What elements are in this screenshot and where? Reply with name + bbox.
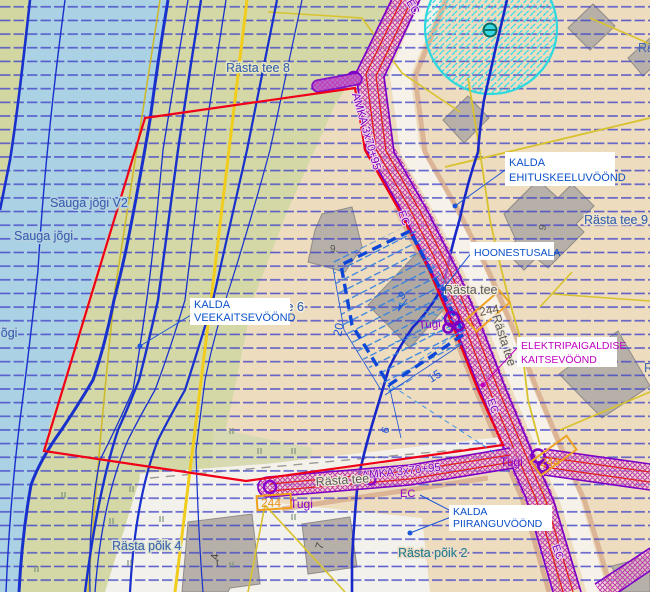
svg-text:Sauga jõgi V2: Sauga jõgi V2 <box>50 196 128 210</box>
svg-text:EHITUSKEELUVÖÖND: EHITUSKEELUVÖÖND <box>509 172 626 184</box>
svg-text:KALDA: KALDA <box>194 299 231 311</box>
svg-text:Rästa tee: Rästa tee <box>444 283 498 297</box>
svg-text:EC: EC <box>400 488 415 500</box>
svg-text:ELEKTRIPAIGALDISE: ELEKTRIPAIGALDISE <box>521 340 626 352</box>
svg-text:t: t <box>216 558 219 569</box>
svg-text:Rästa põik 4: Rästa põik 4 <box>112 539 182 553</box>
svg-text:Rästa tee 9: Rästa tee 9 <box>584 213 648 227</box>
svg-text:Rä: Rä <box>644 361 650 375</box>
svg-text:Sauga jõgi: Sauga jõgi <box>14 229 73 243</box>
svg-text:244: 244 <box>540 455 560 469</box>
svg-text:jõgi: jõgi <box>0 326 17 340</box>
svg-text:Tugi: Tugi <box>290 497 313 511</box>
svg-text:KALDA: KALDA <box>453 506 487 518</box>
svg-text:PIIRANGUVÖÖND: PIIRANGUVÖÖND <box>453 518 543 530</box>
svg-text:VEEKAITSEVÖÖND: VEEKAITSEVÖÖND <box>194 312 296 324</box>
svg-text:Tugi: Tugi <box>418 318 441 332</box>
svg-text:KALDA: KALDA <box>509 157 546 169</box>
svg-text:9.: 9. <box>330 244 338 255</box>
svg-text:Rä: Rä <box>638 41 650 55</box>
svg-text:Rästa põik 2: Rästa põik 2 <box>398 546 468 560</box>
svg-text:Rästa tee 8: Rästa tee 8 <box>226 61 290 75</box>
svg-text:Tugi: Tugi <box>500 455 523 469</box>
svg-text:HOONESTUSALA: HOONESTUSALA <box>474 247 560 259</box>
svg-text:244: 244 <box>261 496 281 510</box>
svg-text:KAITSEVÖÖND: KAITSEVÖÖND <box>521 354 597 366</box>
